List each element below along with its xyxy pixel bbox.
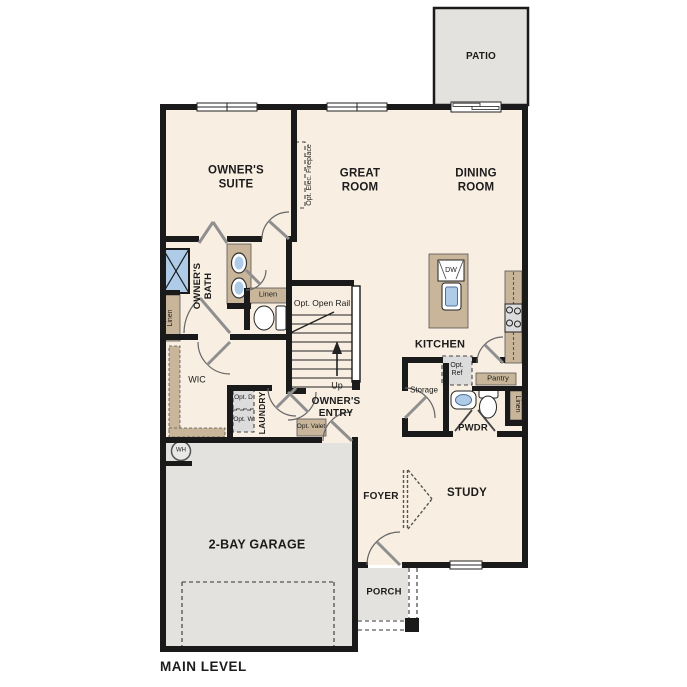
room-label-foyer: FOYER [363,491,398,503]
wall-study-top-b [497,431,528,437]
porch-post [405,618,419,632]
room-label-kitchen: KITCHEN [415,339,465,352]
wall-rail-stub [352,380,360,390]
wall-suite-bottom-a [163,236,199,242]
wall-toilet-nook [244,288,250,330]
room-label-dining-room: DINING ROOM [444,167,508,194]
wall-suite-great-divider [291,110,297,240]
vanity-sink-2-basin [235,282,244,295]
room-label-porch: PORCH [366,586,401,597]
wall-wh-stub [166,461,192,466]
room-label-wic: WIC [188,375,206,386]
plan-title-main-level: MAIN LEVEL [160,659,247,675]
stair-rail [352,286,360,382]
room-label-study: STUDY [447,487,487,501]
pwdr-sink-basin [456,395,472,406]
wall-garage-right [352,437,358,652]
room-label-patio: PATIO [466,51,496,63]
label-opt-valet: Opt. Valet [296,423,326,431]
wall-laundry-top [227,385,272,391]
label-water-heater: WH [176,447,186,454]
annotation-opt-elec-fireplace: Opt. Elec. Fireplace [306,144,314,205]
vanity-sink-1-basin [235,257,244,270]
room-label-owners-bath: OWNER'S BATH [192,255,214,317]
room-label-great-room: GREAT ROOM [328,167,392,194]
room-label-garage: 2-BAY GARAGE [207,538,307,553]
label-storage: Storage [410,385,438,394]
wall-right [522,104,528,568]
wall-pantry-bottom [472,386,528,391]
label-dishwasher: DW [445,267,457,275]
wall-bath-wic-a [163,334,198,340]
room-label-pwdr: PWDR [458,422,488,433]
label-linen-bath: Linen [259,291,277,300]
wic-shelf-left [169,346,180,430]
wall-garage-top [160,437,322,443]
room-label-laundry: LAUNDRY [257,392,267,435]
wall-bath-wic-b [230,334,292,340]
room-label-owners-entry: OWNER'S ENTRY [298,396,374,420]
label-opt-washer: Opt. W [231,416,257,424]
annotation-up: Up [331,381,343,392]
label-linen-hall: Linen [167,309,175,326]
label-opt-dryer: Opt. D [231,394,257,402]
floor-plan: PATIO OWNER'S SUITE GREAT ROOM DINING RO… [0,0,687,687]
wic-shelf-bottom [169,428,225,437]
bath-toilet-bowl [254,306,274,330]
label-opt-ref: Opt. Ref [444,362,470,379]
island-sink-basin [446,287,458,306]
room-label-owners-suite: OWNER'S SUITE [193,164,279,191]
annotation-opt-open-rail: Opt. Open Rail [293,298,351,308]
wall-study-top-a [402,431,453,437]
floor-plan-drawing [0,0,687,687]
wall-bath-stair-divider [286,236,292,393]
wall-storage-top [402,357,443,363]
wall-linen-hall-stub [163,290,180,295]
wall-left [160,104,166,652]
wall-linen-left [505,391,510,420]
wall-suite-bottom-b [227,236,262,242]
wall-garage-bottom [160,646,358,652]
wall-stair-top [292,280,354,286]
label-pantry: Pantry [487,375,509,384]
label-linen-pwdr: Linen [513,395,521,412]
bath-toilet-tank [276,306,286,330]
wall-storage-left-a [402,363,408,391]
wall-linen-bottom [505,420,528,426]
